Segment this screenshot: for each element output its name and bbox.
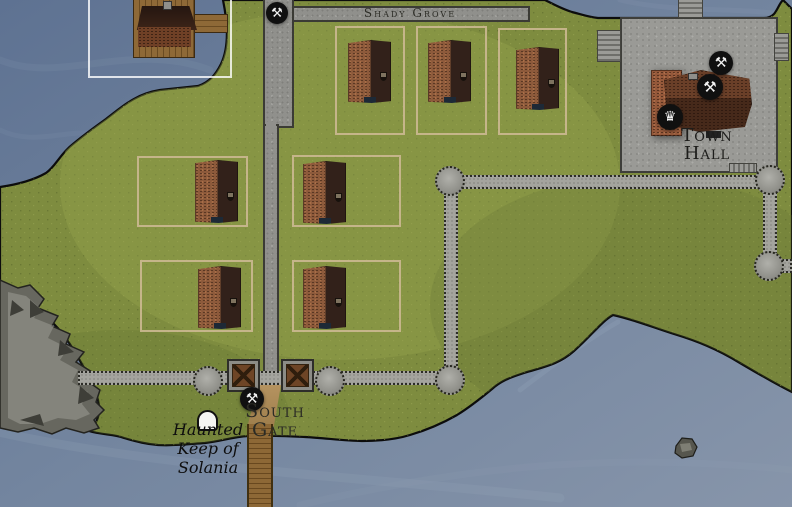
- house-door: [211, 217, 223, 223]
- town-hall-chimney: [688, 73, 698, 80]
- workshop-marker-icon[interactable]: ⚒: [709, 51, 733, 75]
- crown-icon: ♛: [664, 109, 677, 125]
- house-door: [444, 97, 456, 103]
- plaza-dock-north: [678, 0, 703, 18]
- dock-pier: [194, 14, 228, 33]
- haunted-keep-label: Haunted Keep of Solania: [152, 420, 264, 478]
- wall-tower[interactable]: [435, 365, 465, 395]
- hammer-icon: ⚒: [271, 6, 283, 21]
- wall-north: [450, 175, 772, 189]
- crest-icon: [227, 192, 234, 201]
- workshop-marker-icon[interactable]: ⚒: [697, 74, 723, 100]
- wall-west: [444, 181, 458, 381]
- wall-tower[interactable]: [193, 366, 223, 396]
- plaza-stairs-south: [729, 163, 757, 173]
- street-label: Shady Grove: [330, 7, 490, 19]
- hammer-icon: ⚒: [715, 55, 728, 71]
- crest-icon: [335, 193, 342, 202]
- plaza-stairs-west: [597, 30, 621, 62]
- crest-icon: [230, 298, 237, 307]
- wall-south: [78, 371, 450, 385]
- plaza-stairs-east: [774, 33, 789, 61]
- house[interactable]: [195, 160, 238, 223]
- main-road-south: [263, 124, 279, 378]
- wall-tower[interactable]: [315, 366, 345, 396]
- house[interactable]: [516, 47, 559, 110]
- town-hall-label: Town Hall: [660, 127, 754, 163]
- house-door: [532, 104, 544, 110]
- wall-tower[interactable]: [435, 166, 465, 196]
- house-door: [364, 97, 376, 103]
- house[interactable]: [428, 40, 471, 103]
- house-door: [214, 323, 226, 329]
- dock-house-wall: [138, 27, 191, 47]
- wall-tower[interactable]: [754, 251, 784, 281]
- crest-icon: [335, 298, 342, 307]
- crest-icon: [380, 72, 387, 81]
- wall-tower[interactable]: [755, 165, 785, 195]
- crest-icon: [460, 72, 467, 81]
- house[interactable]: [348, 40, 391, 103]
- south-gate-tower-east[interactable]: [281, 359, 314, 392]
- house-door: [319, 323, 331, 329]
- town-map: ⚒ ⚒ ⚒ ♛ ⚒ Shady Grove Town Hall South Ga…: [0, 0, 792, 507]
- crest-icon: [548, 79, 555, 88]
- house[interactable]: [303, 266, 346, 329]
- house-door: [319, 218, 331, 224]
- dock-house-chimney: [163, 1, 172, 10]
- house[interactable]: [303, 161, 346, 224]
- workshop-marker-icon[interactable]: ⚒: [266, 2, 288, 24]
- hammer-icon: ⚒: [703, 78, 716, 96]
- house[interactable]: [198, 266, 241, 329]
